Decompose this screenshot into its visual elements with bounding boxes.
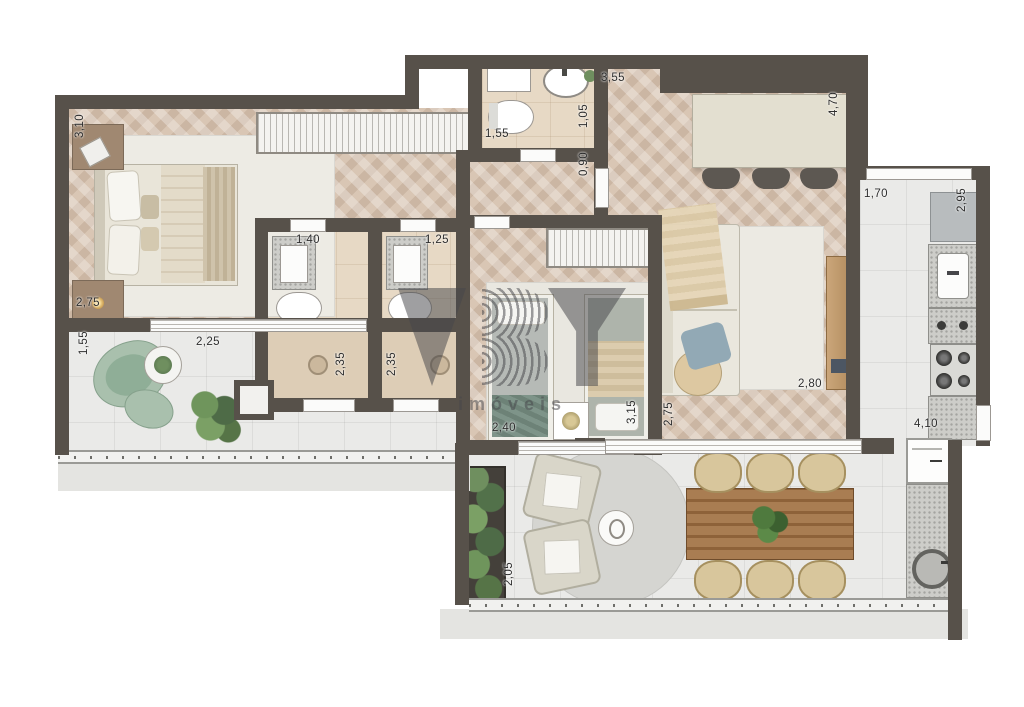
island-stool-2 xyxy=(752,168,790,189)
kitchen-sink-counter xyxy=(928,244,978,308)
dimension-label: 3,15 xyxy=(626,400,638,424)
dimension-label: 1,55 xyxy=(78,331,90,355)
terrace-ledge xyxy=(440,609,968,639)
terrace-armchair-2 xyxy=(522,518,602,597)
island-stool-3 xyxy=(800,168,838,189)
bath1-drain xyxy=(308,355,328,375)
master-bed-pillow-2 xyxy=(107,224,142,276)
bath3-sink xyxy=(543,64,589,98)
window-bathroom-2 xyxy=(393,399,439,412)
dimension-label: 0,90 xyxy=(578,152,590,176)
armchair1-pillow xyxy=(542,472,581,510)
terrace-table-decor xyxy=(609,519,625,539)
bath2-basin xyxy=(393,245,421,283)
living-rug xyxy=(736,226,824,390)
kitchen-faucet xyxy=(947,271,959,275)
terrace-side-table xyxy=(598,510,634,546)
watermark-subtitle: imóveis xyxy=(458,394,567,415)
dimension-label: 4,10 xyxy=(914,418,938,430)
terrace-railing xyxy=(469,598,949,612)
laundry-tank-basin xyxy=(912,549,952,589)
dining-chair-1 xyxy=(694,452,742,493)
bath3-shelf xyxy=(487,66,531,92)
balcony-side-table xyxy=(144,346,182,384)
kitchen-upper-cabinet xyxy=(930,192,978,242)
burner-2 xyxy=(958,352,970,364)
laundry-tank-counter xyxy=(906,484,952,598)
dimension-label: 2,35 xyxy=(386,352,398,376)
wall-terrace-left xyxy=(455,443,469,605)
door-bedroom-2 xyxy=(474,216,510,229)
dining-chair-2 xyxy=(746,452,794,493)
dimension-label: 2,25 xyxy=(196,336,220,348)
nightstand-decor xyxy=(79,137,111,168)
dimension-label: 1,05 xyxy=(578,104,590,128)
dimension-label: 2,75 xyxy=(663,402,675,426)
wardrobe-master xyxy=(256,112,470,154)
wall-living-bottom-right xyxy=(860,438,894,454)
washer-arrow xyxy=(930,460,942,462)
window-kitchen xyxy=(866,168,972,180)
wall-bathblock-top xyxy=(255,218,470,232)
dimension-label: 2,05 xyxy=(503,562,515,586)
wall-living-top-thick xyxy=(660,69,854,93)
dimension-label: 1,55 xyxy=(485,128,509,140)
dimension-label: 2,95 xyxy=(956,188,968,212)
master-bed-cushion-2 xyxy=(141,227,159,251)
master-bed-cushion xyxy=(141,195,159,219)
wall-bath3-left xyxy=(468,55,482,162)
wall-left xyxy=(55,95,69,455)
island-stool-1 xyxy=(702,168,740,189)
window-bathroom-1 xyxy=(303,399,355,412)
burner-3 xyxy=(936,373,952,389)
wall-top-left xyxy=(55,95,415,109)
balcony-table-plant xyxy=(154,356,172,374)
door-bathroom-1 xyxy=(290,219,326,232)
master-bed-duvet xyxy=(161,165,205,283)
door-bathroom-3 xyxy=(520,149,556,162)
sofa-throw-blanket xyxy=(658,203,728,311)
sliding-door-living-terrace xyxy=(605,439,862,454)
watermark-letter-b xyxy=(482,288,548,386)
wall-bedroom2-right xyxy=(648,215,662,455)
door-corridor-hall xyxy=(595,168,609,208)
dining-table xyxy=(686,488,854,560)
watermark-b-top-lobe xyxy=(482,288,548,337)
kitchen-sink-basin xyxy=(937,253,969,299)
bath3-toilet-tank xyxy=(489,103,498,129)
watermark-b-bottom-lobe xyxy=(482,337,548,386)
balcony-duct-box xyxy=(234,380,274,420)
dimension-label: 1,40 xyxy=(296,234,320,246)
wall-living-kitchen xyxy=(846,69,860,446)
burner-1 xyxy=(936,350,952,366)
dimension-label: 1,25 xyxy=(425,234,449,246)
wall-bathblock-divider xyxy=(368,218,382,400)
washer-lid-line xyxy=(912,448,942,450)
washing-machine xyxy=(906,438,952,484)
kitchen-cooktop xyxy=(930,344,978,396)
counter-item-1 xyxy=(937,321,946,330)
living-island-counter xyxy=(692,94,848,168)
balcony-railing xyxy=(58,450,458,464)
window-bedroom-balcony xyxy=(150,319,367,332)
master-bed-throw xyxy=(203,167,235,281)
dimension-label: 1,70 xyxy=(864,188,888,200)
floor-plan: 3,10 2,75 1,55 2,25 1,40 2,35 1,25 2,35 … xyxy=(0,0,1024,707)
master-bed-pillow-1 xyxy=(106,170,141,222)
door-bathroom-2 xyxy=(400,219,436,232)
dining-centerpiece-plant xyxy=(749,503,791,545)
dimension-label: 2,75 xyxy=(76,297,100,309)
wall-service-right xyxy=(948,440,962,640)
dimension-label: 2,40 xyxy=(492,422,516,434)
dimension-label: 2,35 xyxy=(335,352,347,376)
master-bed xyxy=(94,164,238,286)
dining-chair-3 xyxy=(798,452,846,493)
balcony-ledge xyxy=(58,461,470,491)
dining-chair-4 xyxy=(694,560,742,601)
counter-item-2 xyxy=(959,321,968,330)
master-bed-headboard xyxy=(95,165,105,283)
bath1-basin xyxy=(280,245,308,283)
armchair2-pillow xyxy=(543,539,580,574)
bath2-vanity xyxy=(386,236,428,290)
dimension-label: 3,10 xyxy=(74,114,86,138)
dining-chair-5 xyxy=(746,560,794,601)
wardrobe-bedroom2 xyxy=(546,228,654,268)
dimension-label: 4,70 xyxy=(828,92,840,116)
kitchen-counter-mid xyxy=(928,308,978,344)
wall-kitchen-right xyxy=(976,166,990,446)
door-service xyxy=(976,405,991,441)
burner-4 xyxy=(958,375,970,387)
dimension-label: 3,55 xyxy=(601,72,625,84)
dining-chair-6 xyxy=(798,560,846,601)
dimension-label: 2,80 xyxy=(798,378,822,390)
